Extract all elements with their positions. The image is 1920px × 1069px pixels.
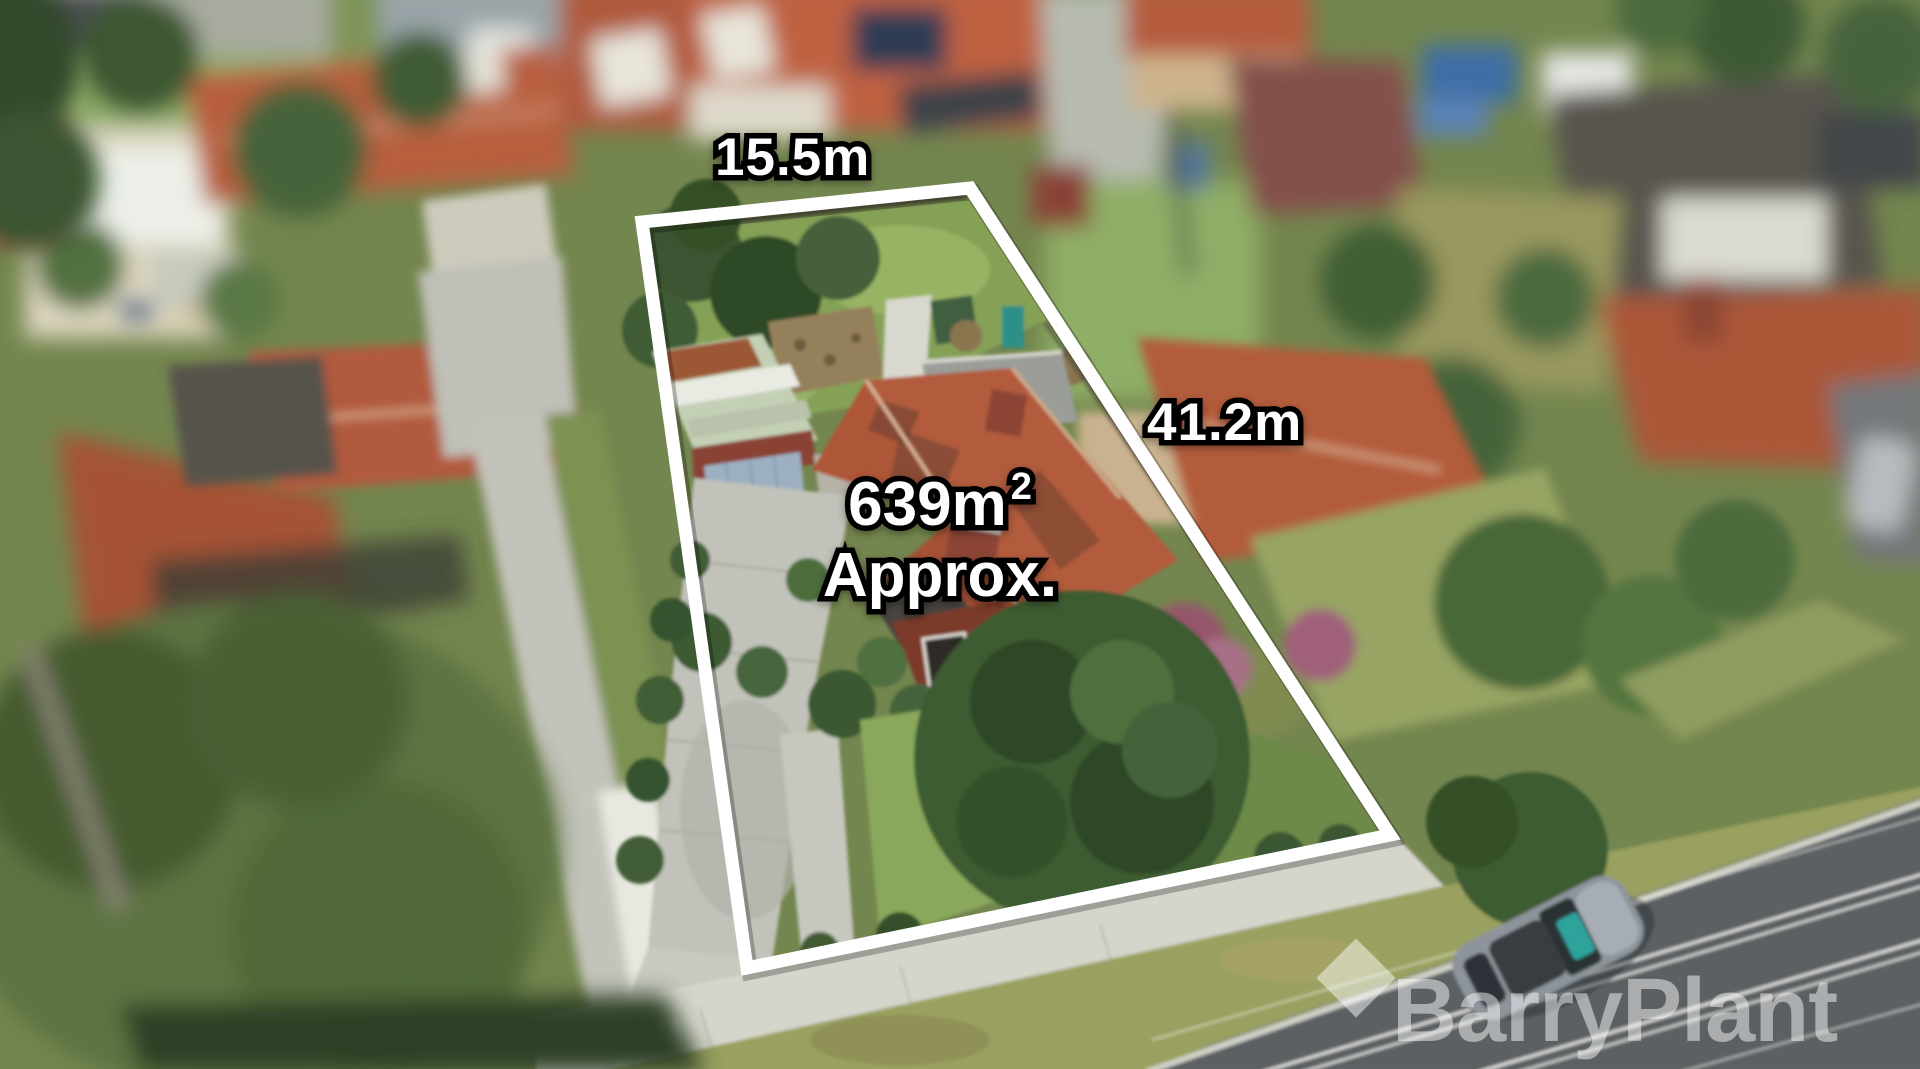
solar-panels bbox=[852, 8, 947, 70]
blue-container bbox=[1422, 45, 1517, 103]
depth-label-text: 41.2m bbox=[1147, 393, 1302, 452]
area-label: 639m2 639m2 bbox=[640, 468, 1240, 536]
aerial-property-photo: 15.5m 15.5m 41.2m 41.2m 639m2 639m2 Appr… bbox=[0, 0, 1920, 1069]
green-shed bbox=[1002, 306, 1024, 348]
area-qualifier-text: Approx. bbox=[823, 541, 1057, 610]
agency-watermark: BarryPlant bbox=[1392, 966, 1837, 1056]
area-exponent: 2 bbox=[1011, 466, 1032, 508]
maroon-roof bbox=[1228, 58, 1424, 215]
depth-dimension-label: 41.2m 41.2m bbox=[1147, 396, 1302, 449]
front-hedge bbox=[120, 995, 705, 1069]
frontage-label-text: 15.5m bbox=[715, 128, 870, 187]
area-qualifier-label: Approx. Approx. bbox=[640, 545, 1240, 607]
area-label-text: 639m2 bbox=[848, 470, 1032, 539]
frontage-dimension-label: 15.5m 15.5m bbox=[715, 131, 870, 184]
area-value: 639m bbox=[848, 470, 1007, 539]
